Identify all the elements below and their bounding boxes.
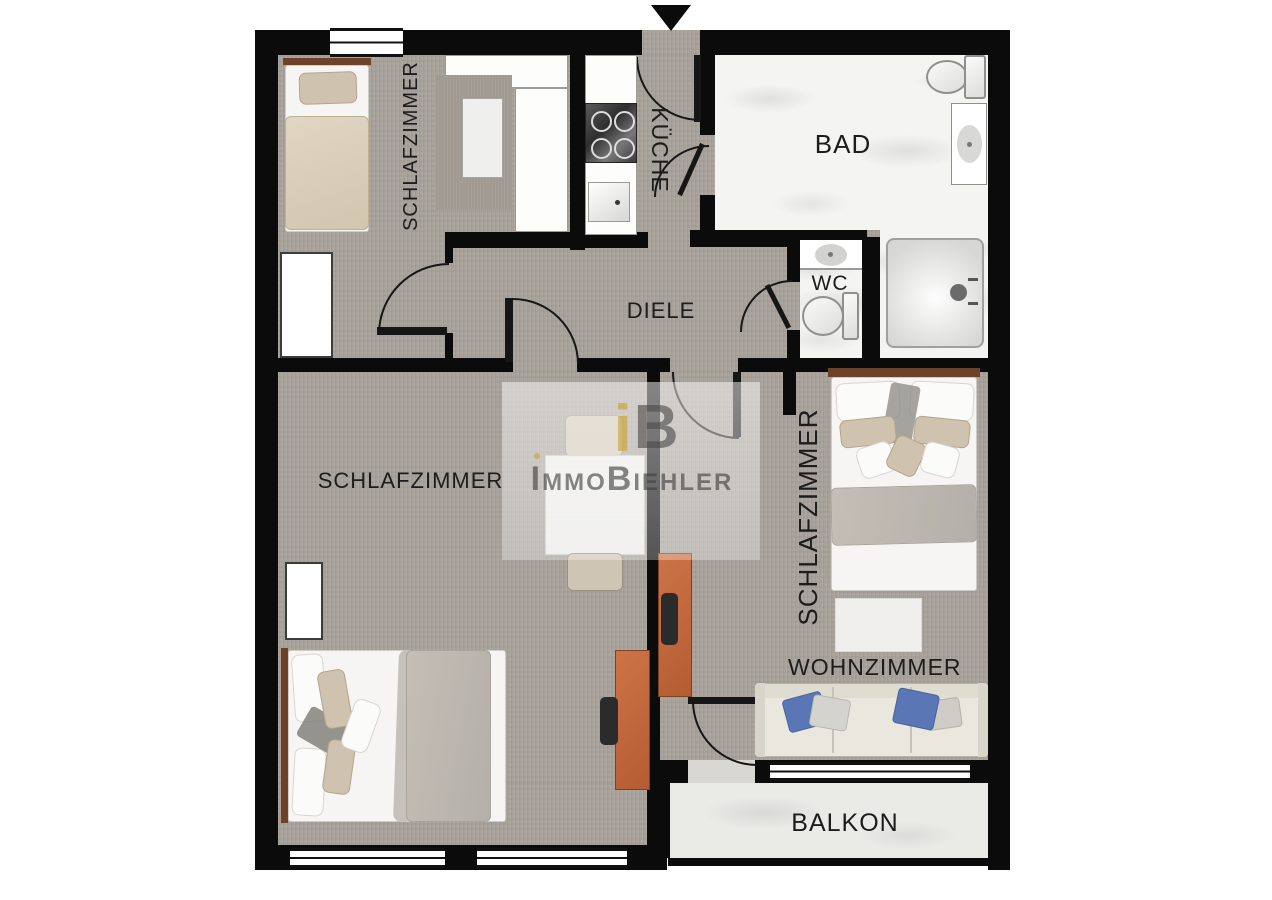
label-bad: BAD bbox=[798, 128, 888, 160]
single-bed-blanket bbox=[285, 116, 369, 230]
table-top-bedroom bbox=[462, 98, 503, 178]
wall-exterior-top-left bbox=[255, 30, 642, 55]
sofa-pillow-gray bbox=[809, 694, 852, 732]
label-schlafzimmer-top-left: SCHLAFZIMMER bbox=[398, 54, 424, 238]
floor-plan: SCHLAFZIMMER KÜCHE BAD WC DIELE SCHLAFZI… bbox=[0, 0, 1272, 900]
double-bed-left-headboard bbox=[281, 648, 288, 823]
wc-sink-counter bbox=[800, 240, 862, 270]
wardrobe-top-bedroom bbox=[280, 252, 333, 358]
bathroom-sink-drain bbox=[967, 142, 972, 147]
double-bed-right bbox=[828, 368, 980, 593]
single-bed-headboard bbox=[283, 58, 371, 65]
watermark-monogram-i: i bbox=[613, 390, 631, 466]
wall-door-stub-top bbox=[445, 248, 453, 263]
double-bed-left-blanket bbox=[406, 650, 491, 822]
wall-exterior-left bbox=[255, 30, 278, 870]
kitchen-sink-drain bbox=[615, 200, 620, 205]
stove-burner bbox=[614, 111, 635, 132]
single-bed bbox=[283, 58, 371, 232]
wall-exterior-top-right bbox=[700, 30, 1010, 55]
wall-balcony-left bbox=[655, 760, 670, 858]
wc-toilet-bowl bbox=[802, 296, 844, 336]
watermark-i-stem: I bbox=[531, 460, 542, 498]
bathroom-toilet-bowl bbox=[926, 60, 968, 94]
chair-left-bedroom bbox=[600, 697, 618, 745]
label-wc: WC bbox=[804, 270, 856, 298]
pillow bbox=[291, 747, 327, 817]
cabinet-side-column bbox=[515, 88, 568, 232]
wc-toilet-tank bbox=[842, 292, 859, 340]
watermark-monogram-b: B bbox=[634, 390, 679, 466]
bathroom-sink-counter bbox=[951, 103, 987, 185]
desk-left-bedroom bbox=[615, 650, 650, 790]
balcony-railing bbox=[668, 858, 988, 866]
sofa-armrest-right bbox=[978, 683, 988, 757]
sofa bbox=[755, 683, 988, 757]
double-bed-right-blanket bbox=[830, 484, 977, 546]
label-balkon: BALKON bbox=[760, 806, 930, 840]
double-bed-right-headboard bbox=[828, 368, 980, 377]
wall-mid-horizontal-center bbox=[577, 358, 670, 372]
sofa-backrest bbox=[756, 684, 987, 698]
wall-exterior-right bbox=[988, 30, 1010, 870]
bathroom-toilet-tank bbox=[964, 55, 986, 99]
wall-mid-horizontal-left bbox=[278, 358, 513, 372]
label-schlafzimmer-right: SCHLAFZIMMER bbox=[794, 384, 822, 650]
label-wohnzimmer: WOHNZIMMER bbox=[788, 652, 950, 682]
label-schlafzimmer-lower-left: SCHLAFZIMMER bbox=[308, 466, 513, 496]
watermark-monogram: i B bbox=[596, 386, 696, 466]
shower bbox=[886, 238, 984, 348]
shower-fitting bbox=[968, 278, 978, 281]
sofa-armrest-left bbox=[755, 683, 765, 757]
window-bottom-left bbox=[290, 848, 445, 868]
stove-burner bbox=[591, 138, 612, 159]
watermark-word-mmo: MMO bbox=[542, 469, 607, 496]
entrance-arrow-icon bbox=[651, 5, 691, 31]
wall-wc-left-upper bbox=[787, 237, 800, 282]
wall-bedroom-kitchen bbox=[570, 55, 585, 250]
kitchen-sink bbox=[588, 182, 630, 222]
stove-burner bbox=[614, 138, 635, 159]
wall-kitchen-bath-lower bbox=[700, 195, 715, 235]
shower-head bbox=[950, 284, 967, 301]
stove-burner bbox=[591, 111, 612, 132]
wall-kitchen-bath-upper bbox=[700, 55, 715, 135]
wc-sink-drain bbox=[828, 252, 833, 257]
window-top-bedroom bbox=[330, 28, 403, 57]
watermark-word-b: B bbox=[607, 460, 634, 498]
window-bottom-right bbox=[477, 848, 627, 868]
wardrobe-lower-bedroom bbox=[285, 562, 323, 640]
double-bed-left bbox=[281, 648, 508, 823]
rug-living-room bbox=[835, 598, 922, 652]
watermark-word-i: I bbox=[531, 460, 542, 498]
watermark-word-iehler: IEHLER bbox=[633, 469, 733, 496]
entrance-opening-floor bbox=[642, 30, 700, 55]
wall-wc-left-lower bbox=[787, 330, 800, 358]
wall-door-stub-bottom bbox=[445, 333, 453, 358]
single-bed-pillow bbox=[298, 71, 357, 105]
shower-fitting bbox=[968, 302, 978, 305]
window-living-balcony bbox=[770, 762, 970, 781]
chair-living-room bbox=[661, 593, 678, 645]
label-diele: DIELE bbox=[616, 296, 706, 326]
watermark-wordmark: IMMOBIEHLER bbox=[506, 460, 758, 502]
bedroom-lowerleft-door-leaf bbox=[505, 298, 513, 362]
watermark-i-dot bbox=[534, 453, 540, 459]
stove bbox=[585, 103, 637, 163]
label-kueche: KÜCHE bbox=[647, 98, 673, 202]
wall-wc-shower-divider bbox=[862, 237, 880, 358]
